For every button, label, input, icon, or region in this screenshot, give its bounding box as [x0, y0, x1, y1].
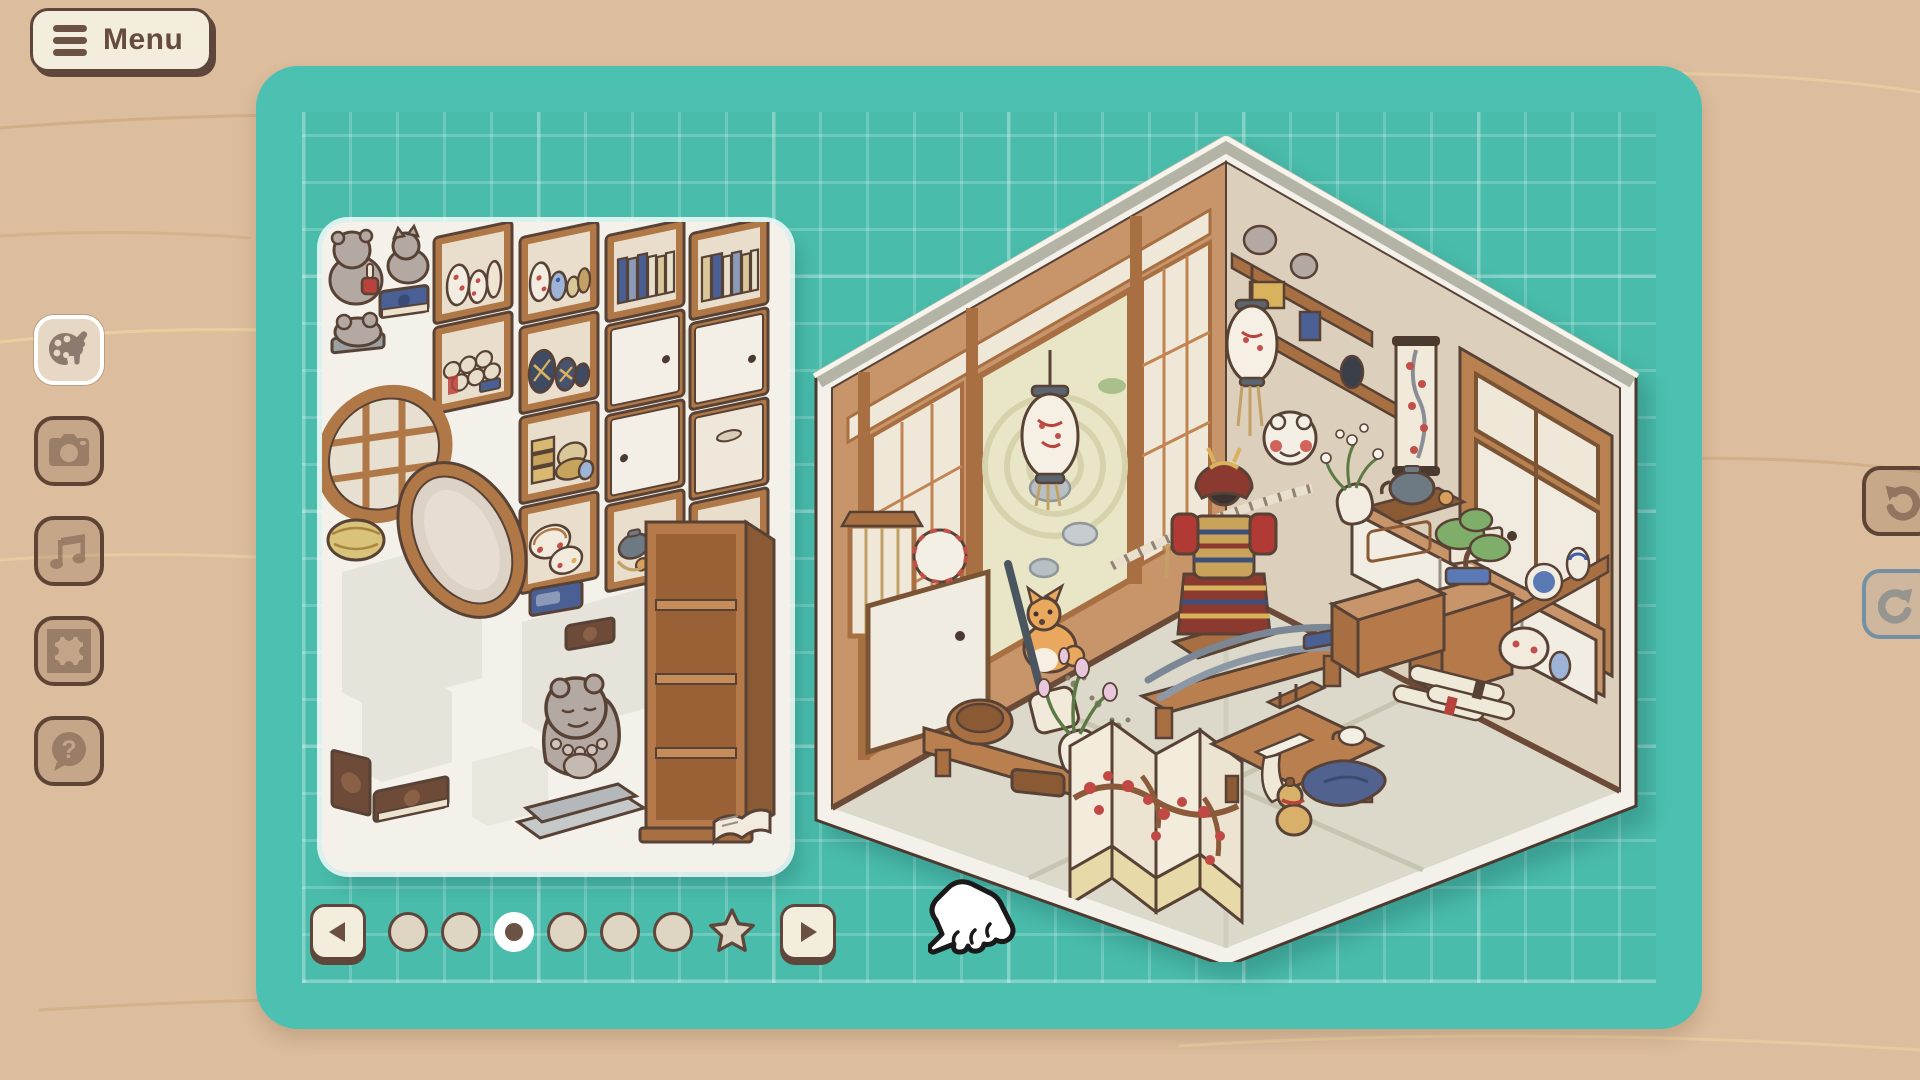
redo-arrow-icon — [1878, 583, 1920, 625]
item-tall-empty-bookshelf[interactable] — [640, 522, 774, 842]
item-shelf-red-plum-vases[interactable] — [434, 222, 512, 324]
redo-button[interactable] — [1862, 569, 1920, 639]
item-frog-figurine-with-candle[interactable] — [330, 230, 382, 304]
toolbar-music-button[interactable] — [34, 516, 104, 586]
question-bubble-icon: ? — [47, 729, 91, 773]
item-blue-book[interactable] — [380, 285, 428, 318]
toolbar-photo-button[interactable] — [34, 416, 104, 486]
item-sliding-door-panel[interactable] — [606, 309, 684, 412]
item-straw-basket[interactable] — [328, 520, 384, 560]
page-dot-star[interactable] — [706, 907, 758, 957]
page-dot-4[interactable] — [547, 912, 587, 952]
toolbar-frame-button[interactable] — [34, 616, 104, 686]
next-page-button[interactable] — [780, 904, 836, 960]
page-dot-5[interactable] — [600, 912, 640, 952]
music-note-icon — [47, 529, 91, 573]
toolbar-customize-button[interactable] — [34, 315, 104, 385]
item-lucky-cat-figurine[interactable] — [388, 226, 428, 283]
camera-icon — [47, 429, 91, 473]
page-dot-6[interactable] — [653, 912, 693, 952]
menu-button[interactable]: Menu — [30, 8, 212, 72]
item-shelf-mixed-books[interactable] — [690, 222, 768, 320]
hanging-scroll[interactable] — [1392, 336, 1440, 476]
inventory-pager — [310, 904, 836, 960]
item-shelf-blue-white-vases[interactable] — [520, 222, 598, 324]
item-shelf-blue-books[interactable] — [606, 222, 684, 322]
item-small-frog-statue[interactable] — [332, 313, 384, 353]
item-brown-book-standing[interactable] — [332, 750, 370, 815]
picture-frame-icon — [47, 629, 91, 673]
hamburger-icon — [53, 25, 87, 56]
room-canvas — [812, 136, 1646, 962]
item-sliding-door-panel-3[interactable] — [690, 307, 768, 410]
undo-arrow-icon — [1878, 480, 1920, 522]
menu-label: Menu — [103, 23, 183, 57]
svg-text:?: ? — [61, 736, 76, 764]
arrow-left-icon — [325, 919, 351, 945]
arrow-right-icon — [795, 919, 821, 945]
prev-page-button[interactable] — [310, 904, 366, 960]
page-dot-2[interactable] — [441, 912, 481, 952]
palette-brush-icon — [47, 328, 91, 372]
item-drawer-panel[interactable] — [690, 397, 768, 500]
inventory-tray — [322, 222, 790, 872]
page-dot-1[interactable] — [388, 912, 428, 952]
item-shelf-dark-jars[interactable] — [520, 311, 598, 414]
item-shelf-scrolls[interactable] — [434, 311, 512, 414]
item-sliding-door-panel-2[interactable] — [606, 399, 684, 502]
frog-mask[interactable] — [1264, 412, 1316, 464]
page-dot-3[interactable] — [494, 912, 534, 952]
item-brown-book-flat[interactable] — [374, 776, 448, 822]
undo-button[interactable] — [1862, 466, 1920, 536]
toolbar-help-button[interactable]: ? — [34, 716, 104, 786]
item-shelf-gold-boxes[interactable] — [520, 401, 598, 504]
page-dots — [388, 907, 758, 957]
item-shelf-red-baskets[interactable] — [520, 491, 598, 594]
